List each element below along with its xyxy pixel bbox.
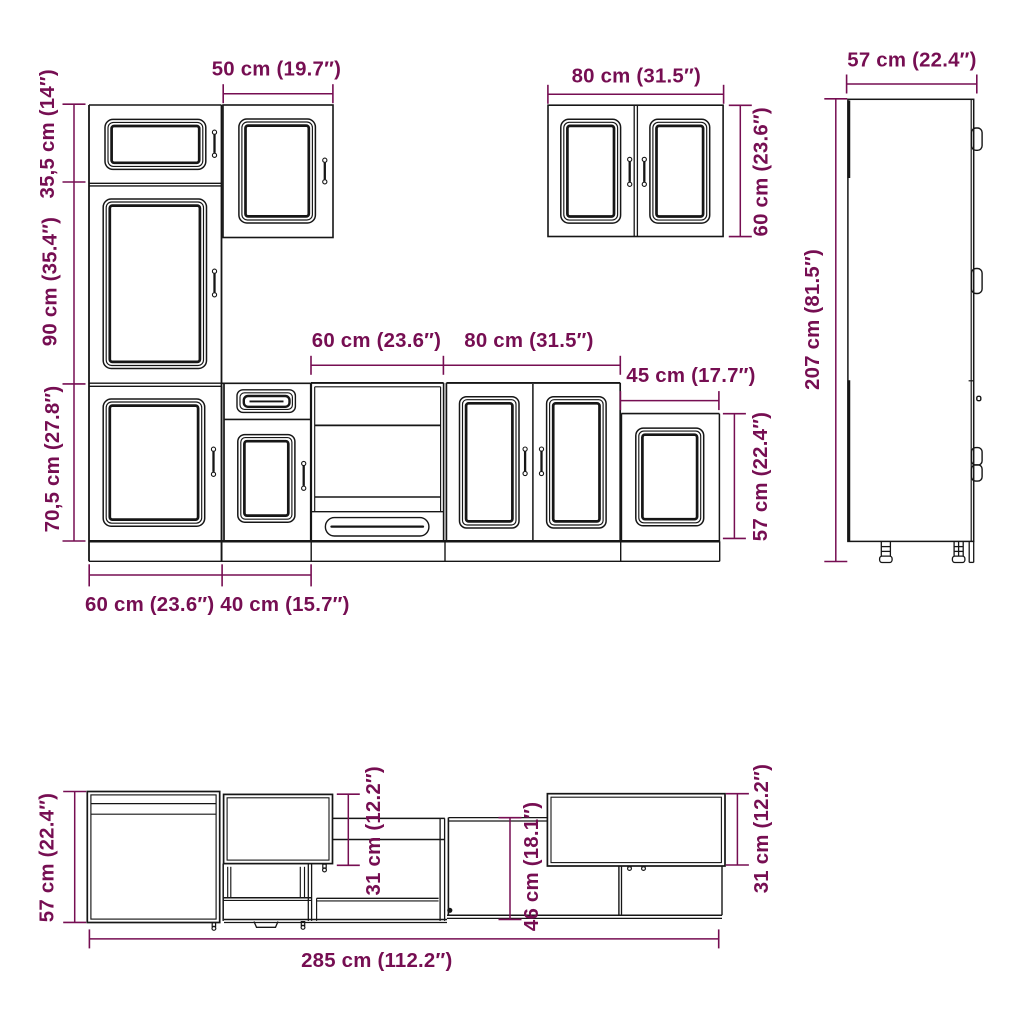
svg-text:57 cm (22.4″): 57 cm (22.4″) [750,412,772,541]
svg-text:45 cm (17.7″): 45 cm (17.7″) [626,365,755,387]
svg-text:285 cm (112.2″): 285 cm (112.2″) [301,950,452,972]
svg-text:35,5 cm (14″): 35,5 cm (14″) [37,69,59,198]
svg-text:60 cm (23.6″): 60 cm (23.6″) [85,594,214,616]
svg-text:60 cm (23.6″): 60 cm (23.6″) [312,330,441,352]
svg-text:60 cm (23.6″): 60 cm (23.6″) [750,107,772,236]
svg-text:80 cm (31.5″): 80 cm (31.5″) [572,66,701,88]
svg-text:90 cm (35.4″): 90 cm (35.4″) [39,217,61,346]
svg-text:70,5 cm (27.8″): 70,5 cm (27.8″) [42,386,64,533]
svg-text:31 cm (12.2″): 31 cm (12.2″) [363,766,385,895]
svg-text:57 cm (22.4″): 57 cm (22.4″) [847,49,976,71]
svg-text:46 cm (18.1″): 46 cm (18.1″) [521,802,543,931]
svg-text:207 cm (81.5″): 207 cm (81.5″) [802,249,824,390]
svg-text:50 cm (19.7″): 50 cm (19.7″) [212,58,341,80]
svg-text:40 cm (15.7″): 40 cm (15.7″) [220,594,349,616]
svg-text:57 cm (22.4″): 57 cm (22.4″) [36,793,58,922]
svg-text:31 cm (12.2″): 31 cm (12.2″) [751,764,773,893]
svg-text:80 cm (31.5″): 80 cm (31.5″) [464,330,593,352]
